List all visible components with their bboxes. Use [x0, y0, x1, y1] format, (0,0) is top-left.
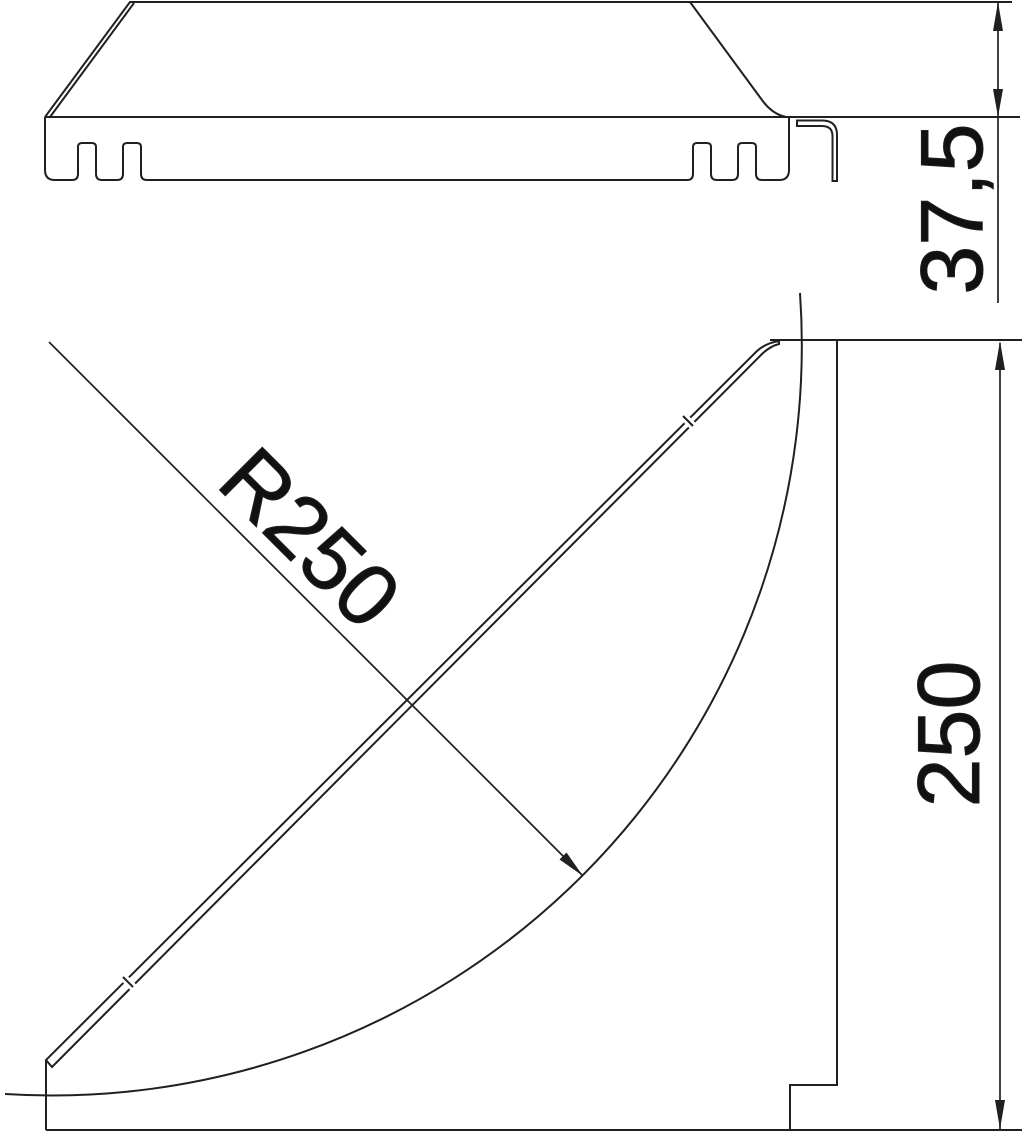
clip-flange-profile: [797, 121, 837, 182]
technical-drawing-canvas: 37,5: [0, 0, 1024, 1133]
section-view: [45, 2, 1020, 181]
plan-right-edge-step: [790, 341, 837, 1129]
plan-view: [5, 293, 1022, 1130]
section-height-dimension: 37,5: [902, 2, 1003, 303]
arrowhead-down: [993, 89, 1003, 117]
dimension-label-250: 250: [899, 661, 998, 808]
arrowhead-down-250: [995, 1100, 1005, 1129]
dimension-label-37-5: 37,5: [902, 123, 1001, 294]
plan-depth-dimension: 250: [899, 341, 1005, 1129]
arrowhead-up-250: [995, 341, 1005, 370]
ramp-profile: [45, 2, 786, 117]
cad-drawing: 37,5: [0, 0, 1024, 1133]
radius-arrowhead: [560, 853, 584, 877]
arrowhead-up: [993, 2, 1003, 31]
drawing-root: 37,5: [5, 2, 1022, 1130]
radius-dimension: R250: [49, 342, 583, 876]
board-profile: [45, 117, 789, 180]
radius-label-r250: R250: [201, 428, 420, 647]
ramp-laminate-inner-line: [50, 3, 134, 117]
